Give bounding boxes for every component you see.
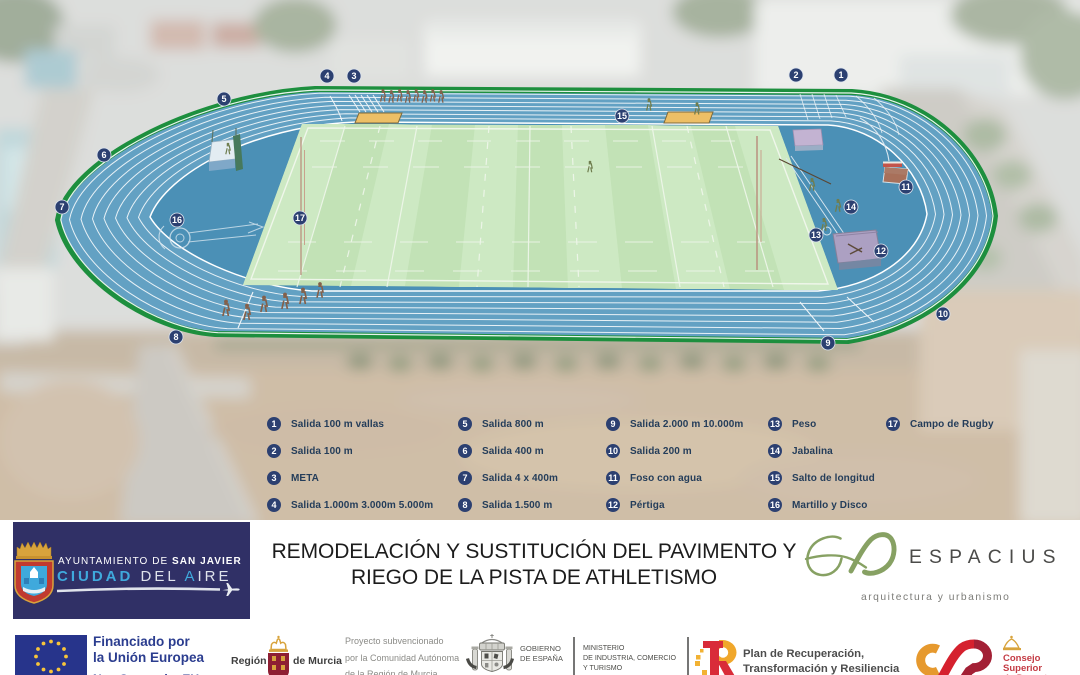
- svg-text:1: 1: [838, 70, 843, 80]
- svg-text:9: 9: [825, 338, 830, 348]
- svg-text:10: 10: [938, 309, 948, 319]
- svg-text:2: 2: [793, 70, 798, 80]
- svg-text:17: 17: [295, 213, 305, 223]
- svg-text:16: 16: [172, 215, 182, 225]
- svg-text:3: 3: [351, 71, 356, 81]
- svg-text:6: 6: [101, 150, 106, 160]
- svg-text:5: 5: [221, 94, 226, 104]
- svg-text:7: 7: [59, 202, 64, 212]
- svg-text:11: 11: [901, 182, 911, 192]
- svg-text:8: 8: [173, 332, 178, 342]
- svg-text:13: 13: [811, 230, 821, 240]
- svg-text:12: 12: [876, 246, 886, 256]
- svg-text:4: 4: [324, 71, 329, 81]
- svg-text:15: 15: [617, 111, 627, 121]
- svg-text:14: 14: [846, 202, 856, 212]
